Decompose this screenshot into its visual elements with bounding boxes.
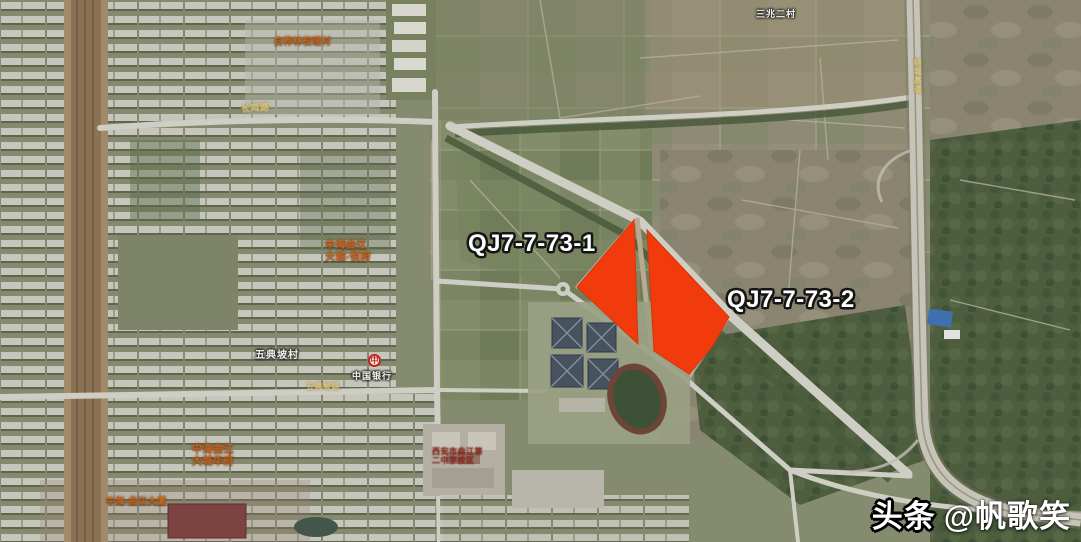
poi-label-compound-southwest: 中海曲江 大城华府	[192, 444, 234, 467]
blue-roof-building	[927, 308, 953, 327]
poi-label-village-northeast: 三兆二村	[756, 9, 796, 19]
open-block	[118, 235, 238, 330]
poi-label-compound-sw-line2: 大城华府	[192, 456, 234, 468]
poi-label-compound-mid-line1: 中海曲江	[325, 240, 371, 252]
poi-label-school: 西安市曲江第 二中学校区	[432, 447, 483, 465]
road-label-south: 五典坡路	[306, 382, 340, 391]
watermark: 头条 @帆歌笑	[872, 491, 1071, 536]
railway-corridor	[64, 0, 108, 542]
white-building	[944, 330, 960, 339]
road-label-highway: 绕城高速	[913, 58, 922, 94]
poi-label-compound-mid-line2: 大城·悦府	[325, 252, 371, 264]
poi-label-school-line2: 二中学校区	[432, 456, 483, 465]
parcel-label-2: QJ7-7-73-2	[727, 286, 855, 314]
poi-label-tower-southwest: 中海·曲江大厦	[106, 496, 167, 506]
satellite-map: QJ7-7-73-1 QJ7-7-73-2 白桦林校理村 长鸣路 中海曲江 大城…	[0, 0, 1081, 542]
construction-pad	[512, 470, 604, 508]
road-label-northwest: 长鸣路	[241, 102, 270, 114]
compound-block	[245, 20, 380, 115]
watermark-handle: @帆歌笑	[944, 491, 1071, 536]
courtyard-green	[300, 150, 390, 250]
pond	[294, 517, 338, 537]
parcel-label-1: QJ7-7-73-1	[468, 230, 596, 258]
red-roof-building	[168, 504, 246, 538]
poi-label-school-line1: 西安市曲江第	[432, 447, 483, 456]
poi-label-bank: 中国银行	[352, 371, 392, 381]
poi-label-village-west: 五典坡村	[255, 350, 299, 362]
watermark-brand: 头条	[872, 491, 936, 536]
courtyard-green	[130, 140, 200, 220]
poi-label-compound-mid: 中海曲江 大城·悦府	[325, 240, 371, 263]
poi-label-compound-top: 白桦林校理村	[274, 36, 331, 46]
roundabout	[556, 282, 570, 296]
bank-logo-glyph: 中	[371, 357, 379, 365]
poi-label-compound-sw-line1: 中海曲江	[192, 444, 234, 456]
bank-of-china-logo-icon: 中	[368, 354, 381, 367]
